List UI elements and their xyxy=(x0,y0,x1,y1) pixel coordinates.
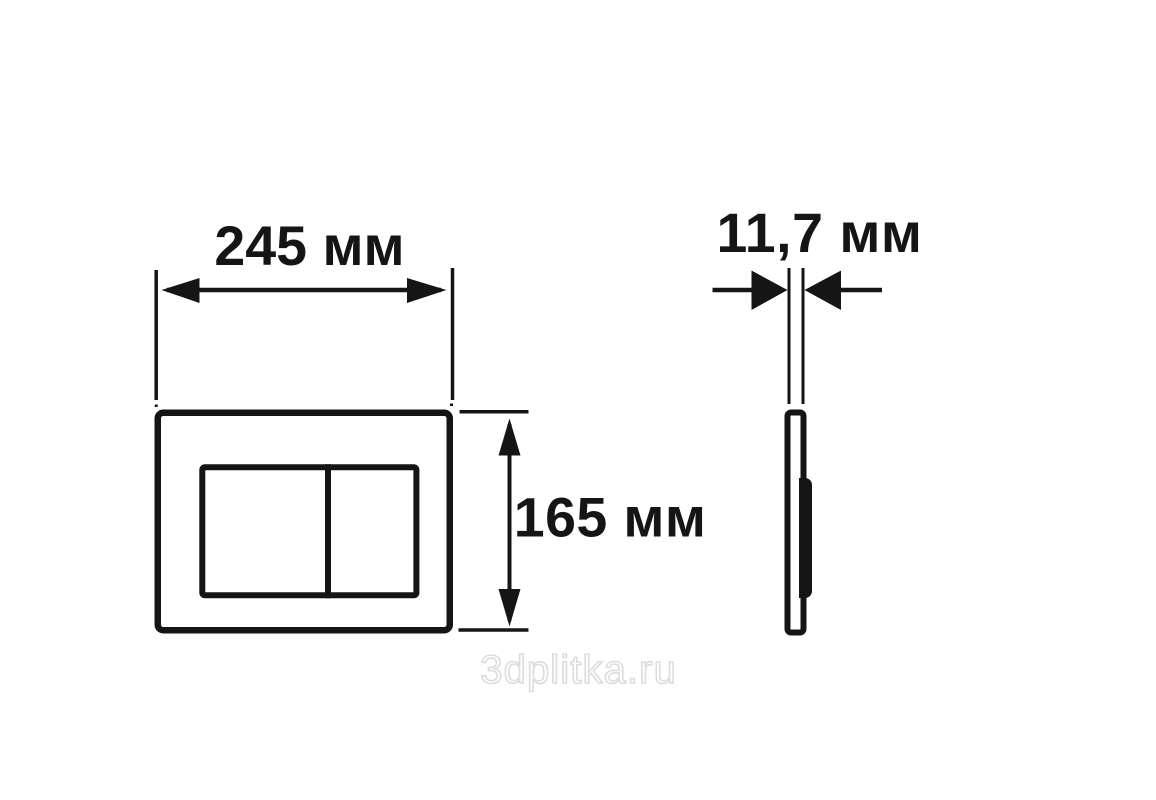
svg-text:3dplitka.ru: 3dplitka.ru xyxy=(480,648,677,692)
svg-text:165 мм: 165 мм xyxy=(514,487,707,549)
svg-text:245 мм: 245 мм xyxy=(214,215,404,277)
svg-text:11,7 мм: 11,7 мм xyxy=(717,202,923,264)
